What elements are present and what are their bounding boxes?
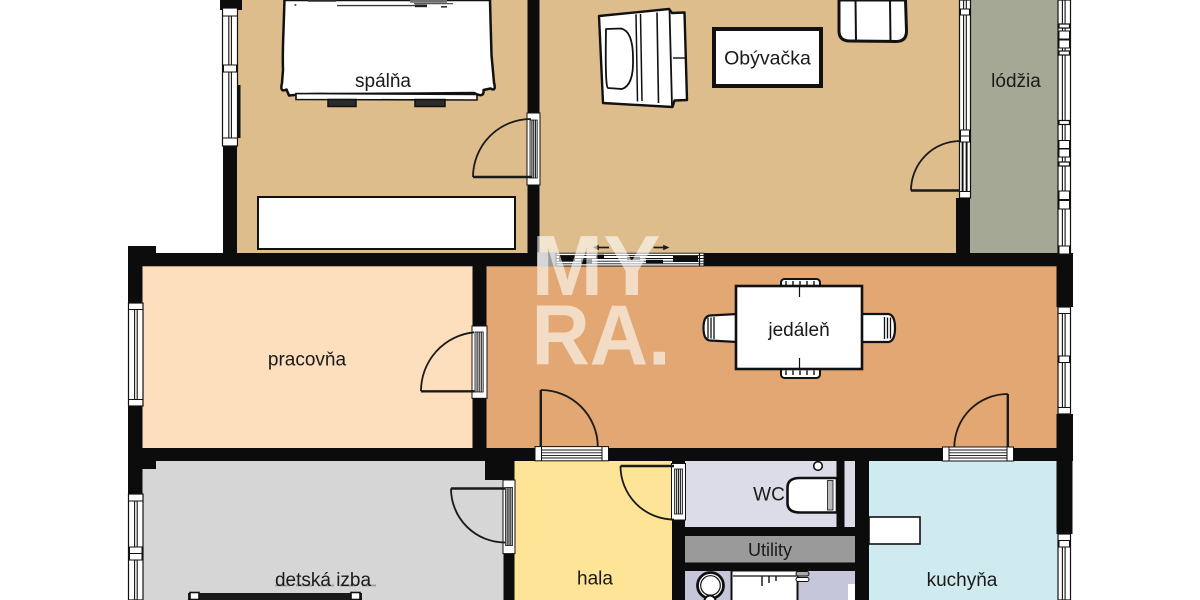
svg-text:RA.: RA. [532, 289, 671, 384]
svg-text:Utility: Utility [748, 540, 792, 560]
svg-text:Obývačka: Obývačka [724, 48, 811, 70]
svg-text:kuchyňa: kuchyňa [927, 570, 998, 591]
svg-text:spálňa: spálňa [355, 71, 411, 92]
svg-text:WC: WC [753, 485, 785, 506]
svg-text:hala: hala [577, 569, 613, 590]
svg-text:detská izba: detská izba [275, 570, 372, 591]
svg-text:pracovňa: pracovňa [268, 350, 347, 371]
svg-text:jedáleň: jedáleň [767, 320, 829, 341]
svg-text:lódžia: lódžia [991, 71, 1041, 92]
